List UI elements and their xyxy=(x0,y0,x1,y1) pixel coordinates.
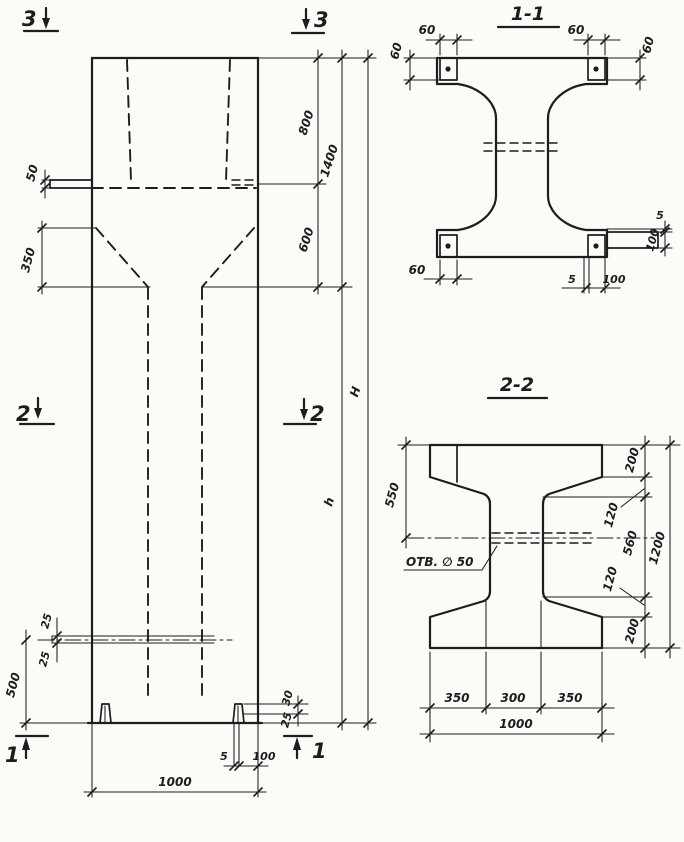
dim-hole-off-top: 25 xyxy=(38,612,55,630)
marker-1-left: 1 xyxy=(5,743,20,767)
dim-base-plate-width: 100 xyxy=(253,750,276,763)
hidden-lines xyxy=(92,60,256,702)
dim-w-right: 350 xyxy=(557,691,582,705)
hole-callout-label: ОТВ. ∅ 50 xyxy=(406,555,473,569)
dim-w-left: 350 xyxy=(444,691,469,705)
dim-anchor-tr: 60 xyxy=(568,23,585,37)
section-2-2-title: 2-2 xyxy=(500,374,534,396)
dim-anchor-bl: 60 xyxy=(409,263,426,277)
dim-web-clear: 560 xyxy=(620,529,640,557)
section-1-1: 1-1 60 60 60 xyxy=(387,3,672,293)
dim-base-plate-thk: 5 xyxy=(220,750,228,763)
dim-section-width: 1000 xyxy=(499,717,532,731)
section-markers: 3 3 2 2 1 1 xyxy=(5,7,329,767)
column-outline xyxy=(50,58,262,723)
marker-1-right: 1 xyxy=(312,739,327,763)
marker-2-right: 2 xyxy=(310,402,325,426)
dim-shaft-height: h xyxy=(321,496,337,508)
dim-strip-offset: 5 xyxy=(656,209,664,222)
section-2-2-outline xyxy=(430,445,602,648)
dim-section-height: 1200 xyxy=(646,530,668,566)
marker-3-left: 3 xyxy=(22,7,37,31)
marker-3-right: 3 xyxy=(314,8,329,32)
dim-plate-width: 100 xyxy=(603,273,626,286)
technical-drawing: 50 350 800 600 1400 h H 500 xyxy=(0,0,684,842)
dim-total-height: H xyxy=(347,385,363,399)
dim-strip-height: 100 xyxy=(643,227,662,253)
marker-2-left: 2 xyxy=(16,402,31,426)
dim-anchor-tl: 60 xyxy=(419,23,436,37)
dim-hole-to-base: 500 xyxy=(3,671,23,699)
dim-rib-lower: 25 xyxy=(278,711,295,729)
dim-plate-thk: 5 xyxy=(568,273,576,286)
dim-haunch-bottom: 120 xyxy=(600,565,620,593)
section-1-1-dimensions: 60 60 60 60 60 5 xyxy=(387,23,672,293)
dim-cap-upper: 800 xyxy=(296,109,317,137)
dim-shoulder: 350 xyxy=(18,246,38,274)
drawing-sheet: 50 350 800 600 1400 h H 500 xyxy=(0,0,684,842)
elevation-view: 50 350 800 600 1400 h H 500 xyxy=(3,7,376,797)
dim-ledge-offset: 50 xyxy=(23,163,41,183)
dim-elevation-width: 1000 xyxy=(158,775,191,789)
section-1-1-outline xyxy=(437,58,607,257)
section-1-1-title: 1-1 xyxy=(511,3,545,25)
dim-cap-lower: 600 xyxy=(296,226,317,254)
dim-edge-right: 60 xyxy=(639,35,657,55)
dim-edge-left: 60 xyxy=(387,41,405,61)
dim-cap-total: 1400 xyxy=(317,143,341,179)
dim-flange-to-axis: 550 xyxy=(382,481,402,509)
section-2-2: 2-2 ОТВ. ∅ 50 550 xyxy=(382,374,680,742)
section-2-2-dimensions: 550 200 120 560 120 200 1200 xyxy=(382,436,680,742)
dim-flange-bottom: 200 xyxy=(622,617,642,645)
dim-haunch-top: 120 xyxy=(601,501,621,529)
dim-hole-off-bottom: 25 xyxy=(36,650,53,668)
dim-w-mid: 300 xyxy=(500,691,525,705)
dim-flange-top: 200 xyxy=(622,446,642,474)
